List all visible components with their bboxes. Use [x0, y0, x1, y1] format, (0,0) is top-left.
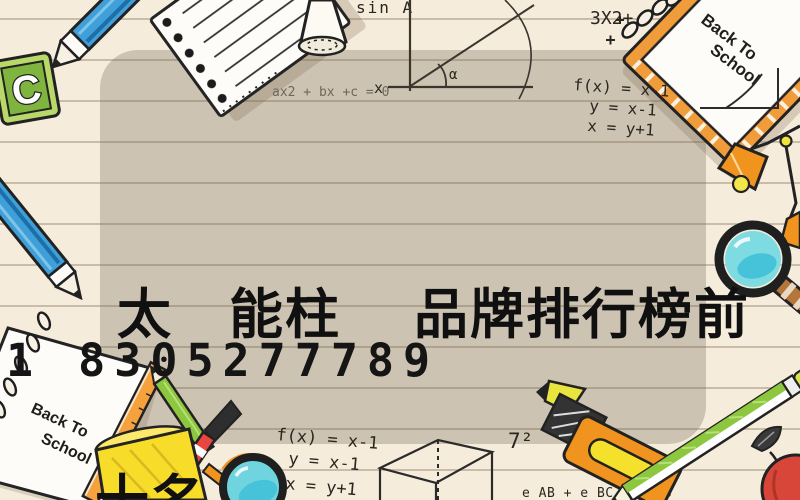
- poster-canvas: C ax2 + bx +c = 0 sin A: [0, 0, 800, 500]
- phone-number: 1 8305277789: [6, 334, 439, 387]
- letter-c-tile-icon: C: [0, 52, 60, 125]
- x-axis-label: x: [374, 79, 383, 97]
- sin-a-text: sin A: [356, 0, 414, 17]
- apple-icon: [752, 427, 800, 500]
- trig-graph-icon: [388, 0, 534, 99]
- equation-x-top: x = y+1: [587, 116, 656, 140]
- angle-label: α: [449, 67, 458, 83]
- quadratic-equation-text: ax2 + bx +c = 0: [272, 85, 389, 100]
- blue-pencil-left-icon: [0, 168, 90, 305]
- page-title: 太 能柱 品牌排行榜前 十名: [95, 160, 750, 500]
- blue-pencil-top-left-icon: [44, 0, 144, 76]
- title-line-2: 十名: [95, 470, 750, 500]
